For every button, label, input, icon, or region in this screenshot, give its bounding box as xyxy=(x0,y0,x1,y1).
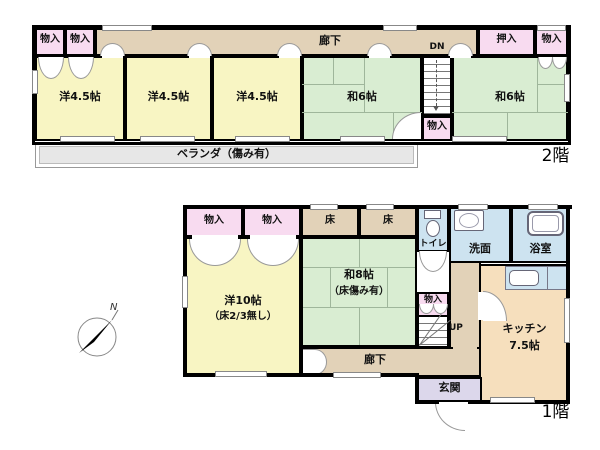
tatami-line xyxy=(302,84,364,85)
f1-room-jpn-label: 和8帖 xyxy=(301,269,417,282)
f2-room-west-a-label: 洋4.5帖 xyxy=(35,91,125,104)
window xyxy=(310,204,338,210)
f1-stairs-up-label: UP xyxy=(449,323,473,333)
door-opening xyxy=(189,53,210,58)
f1-corridor-label: 廊下 xyxy=(350,354,400,367)
tatami-line xyxy=(302,112,422,113)
f2-floor-label: 2階 xyxy=(528,147,583,167)
window xyxy=(528,204,558,210)
tatami-line xyxy=(359,239,360,267)
tatami-line xyxy=(452,112,568,113)
window xyxy=(340,136,385,142)
window xyxy=(383,25,417,31)
f1-entrance-label: 玄関 xyxy=(417,382,482,395)
window xyxy=(140,136,195,142)
compass-needle-icon xyxy=(79,320,112,353)
f2-closet-stairs-label: 物入 xyxy=(422,121,452,133)
f2-room-jpn-a-label: 和6帖 xyxy=(302,91,422,104)
compass: N xyxy=(67,299,127,359)
door-opening xyxy=(279,53,300,58)
floor-plan: 物入 物入 廊下 DN 押入 物入 洋4.5帖 洋4.5帖 洋4.5帖 和6帖 … xyxy=(0,0,600,450)
door-opening xyxy=(450,53,471,58)
f1-bathroom-label: 浴室 xyxy=(511,243,570,256)
f1-closet-a-label: 物入 xyxy=(185,215,243,227)
f2-closet-right-label: 物入 xyxy=(535,34,568,46)
wall-segment xyxy=(415,400,439,404)
f2-room-west-b-label: 洋4.5帖 xyxy=(125,91,212,104)
f1-washroom-label: 洗面 xyxy=(449,243,511,256)
f2-room-jpn-b-label: 和6帖 xyxy=(452,91,568,104)
door-opening xyxy=(250,235,296,240)
f2-stairs-dn-label: DN xyxy=(421,42,453,52)
f1-kitchen-size-label: 7.5帖 xyxy=(479,340,570,353)
f1-floor-label: 1階 xyxy=(528,403,583,423)
corridor-door-arc xyxy=(303,349,327,375)
corridor-join xyxy=(453,345,477,353)
f2-stairs-arrow-head xyxy=(433,106,439,111)
kitchen-sink-icon xyxy=(509,270,539,286)
toilet-door-arc xyxy=(419,251,447,272)
f1-room-west-label: 洋10帖 xyxy=(185,295,301,308)
tatami-line xyxy=(507,112,508,139)
f2-closet-left-a-label: 物入 xyxy=(35,34,65,46)
f2-closet-oshiire-label: 押入 xyxy=(478,34,535,46)
f1-closet-stairs-label: 物入 xyxy=(417,295,449,305)
window xyxy=(452,136,507,142)
f2-veranda-label: ベランダ（傷み有） xyxy=(35,148,418,161)
f2-stairs-arrow-line xyxy=(436,60,437,106)
window xyxy=(366,204,394,210)
f1-closet-b-label: 物入 xyxy=(243,215,301,227)
f1-room-west-note: （床2/3無し） xyxy=(185,311,301,323)
sink-basin-icon xyxy=(459,213,479,228)
window xyxy=(537,25,566,31)
window xyxy=(333,372,381,378)
door-opening xyxy=(102,53,123,58)
f1-corridor-vertical xyxy=(449,261,481,351)
f1-toko-a-label: 床 xyxy=(301,215,359,227)
tatami-line xyxy=(359,307,360,345)
f1-toko-b-label: 床 xyxy=(359,215,417,227)
f2-closet-left-b-label: 物入 xyxy=(65,34,95,46)
f1-toilet-label: トイレ xyxy=(415,239,451,249)
toilet-bowl-icon xyxy=(426,220,440,237)
bathtub-inner-icon xyxy=(532,215,559,232)
door-opening xyxy=(478,292,483,320)
window xyxy=(564,298,570,343)
f1-kitchen-label: キッチン xyxy=(479,323,570,336)
compass-north-label: N xyxy=(110,302,118,313)
door-opening xyxy=(192,235,238,240)
door-opening xyxy=(369,53,390,58)
window xyxy=(458,204,488,210)
window xyxy=(102,25,152,31)
tatami-line xyxy=(537,58,538,112)
window xyxy=(60,136,115,142)
f1-room-jpn-note: （床傷み有） xyxy=(301,286,417,298)
tatami-line xyxy=(333,58,334,84)
entrance-door-arc xyxy=(435,402,465,431)
toilet-tank-icon xyxy=(424,210,441,219)
f2-corridor-label: 廊下 xyxy=(305,35,355,48)
counter-divider xyxy=(547,266,548,290)
f2-room-west-c-label: 洋4.5帖 xyxy=(212,91,302,104)
window xyxy=(235,136,290,142)
tatami-line xyxy=(364,58,365,112)
window xyxy=(215,371,267,377)
